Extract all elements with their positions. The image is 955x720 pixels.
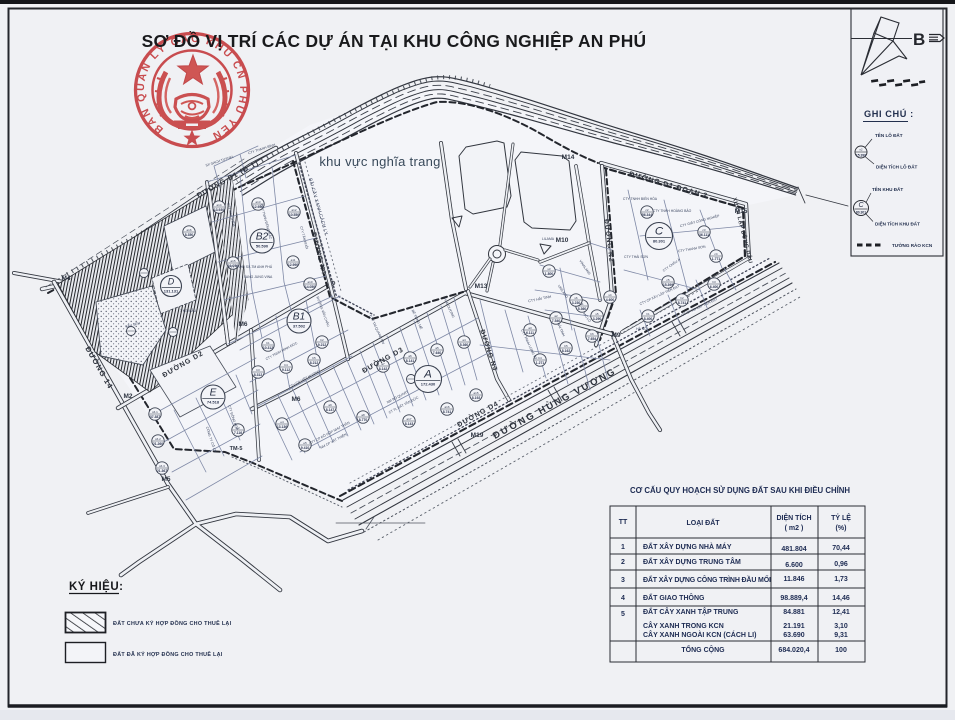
svg-text:B1: B1 [293,312,305,323]
svg-text:70,44: 70,44 [832,545,850,552]
svg-text:TT: TT [619,519,628,526]
svg-text:7.640: 7.640 [433,351,442,355]
svg-text:TÊN KHU ĐẤT: TÊN KHU ĐẤT [872,185,903,192]
svg-text:74.518: 74.518 [207,400,220,405]
svg-text:a15: a15 [473,391,478,395]
svg-text:84.881: 84.881 [783,609,805,616]
svg-text:TƯỜNG RÀO KCN: TƯỜNG RÀO KCN [892,241,933,248]
svg-text:b5: b5 [564,344,568,348]
svg-text:a3: a3 [528,326,532,330]
svg-text:37.387: 37.387 [150,415,160,419]
svg-text:1.771: 1.771 [712,257,721,261]
svg-text:8.141: 8.141 [406,359,415,363]
svg-text:h2: h2 [680,296,684,300]
svg-text:a17: a17 [406,417,411,421]
svg-text:s5: s5 [595,312,599,316]
svg-text:DIỆN TÍCH KHU ĐẤT: DIỆN TÍCH KHU ĐẤT [875,220,920,227]
svg-text:12,41: 12,41 [832,609,850,616]
svg-text:khu vực nghĩa trang: khu vực nghĩa trang [319,154,440,169]
svg-text:B: B [913,30,925,49]
svg-text:1.800: 1.800 [545,272,554,276]
svg-text:7.116: 7.116 [234,431,242,435]
svg-text:CTY TNHH BIỂN HÒA: CTY TNHH BIỂN HÒA [623,196,658,201]
svg-text:KÝ HIỆU:: KÝ HIỆU: [69,580,123,593]
svg-text:a4: a4 [462,338,466,342]
svg-text:9.410: 9.410 [301,446,310,450]
svg-text:13.136: 13.136 [277,425,287,429]
svg-text:8.741: 8.741 [443,410,452,414]
svg-text:A: A [423,369,432,381]
svg-text:6.400: 6.400 [710,285,719,289]
svg-text:36.111: 36.111 [699,233,709,237]
svg-text:e5: e5 [303,441,307,445]
svg-text:CƠ CẤU QUY HOẠCH SỬ DỤNG ĐẤT S: CƠ CẤU QUY HOẠCH SỬ DỤNG ĐẤT SAU KHI ĐIỀ… [630,485,850,495]
svg-text:LILAMA: LILAMA [542,237,555,241]
svg-text:c3: c3 [702,228,706,232]
svg-text:c4: c4 [714,252,718,256]
svg-text:DIỆN TÍCH: DIỆN TÍCH [777,513,812,522]
svg-text:M5: M5 [161,476,170,483]
svg-text:ĐẤT ĐÃ KÝ HỢP ĐỒNG CHO THUÊ LẠ: ĐẤT ĐÃ KÝ HỢP ĐỒNG CHO THUÊ LẠI [113,650,223,658]
svg-text:b4: b4 [538,356,542,360]
svg-text:SƠ ĐỒ VỊ TRÍ CÁC DỰ ÁN TẠI KHU: SƠ ĐỒ VỊ TRÍ CÁC DỰ ÁN TẠI KHU CÔNG NGHI… [142,31,647,51]
svg-text:6.600: 6.600 [785,562,803,569]
svg-text:3.290: 3.290 [593,317,602,321]
svg-text:10.312: 10.312 [263,346,273,350]
svg-text:172.430: 172.430 [421,382,436,387]
svg-text:8.312: 8.312 [254,373,263,377]
svg-text:3.230: 3.230 [572,301,581,305]
svg-text:21.367: 21.367 [157,469,167,473]
svg-text:1.271: 1.271 [536,361,545,365]
svg-text:M19: M19 [471,432,484,439]
svg-text:98.889,4: 98.889,4 [780,595,807,602]
svg-text:HÀ NỘI: HÀ NỘI [636,326,648,331]
svg-text:a5: a5 [435,346,439,350]
svg-text:a2: a2 [554,314,558,318]
svg-text:M4: M4 [61,275,70,282]
svg-text:s6: s6 [574,296,578,300]
svg-text:14.050: 14.050 [305,285,315,289]
svg-text:2: 2 [621,559,625,566]
svg-text:TỶ LỆ: TỶ LỆ [831,513,851,522]
svg-text:E: E [210,388,217,399]
svg-text:1,73: 1,73 [834,576,848,583]
svg-text:TÊN LÔ ĐẤT: TÊN LÔ ĐẤT [875,131,903,138]
svg-text:b2: b2 [320,338,324,342]
svg-text:5.360: 5.360 [460,343,469,347]
svg-text:9.212: 9.212 [318,343,327,347]
svg-text:5: 5 [621,611,625,618]
svg-text:8.350: 8.350 [185,233,194,237]
svg-text:684.020,4: 684.020,4 [778,647,809,654]
svg-text:a12: a12 [291,208,296,212]
svg-text:s6.3: s6.3 [159,464,165,468]
svg-text:M6: M6 [291,396,300,403]
svg-text:ĐẤT CHƯA KÝ HỢP ĐỒNG CHO THUÊ: ĐẤT CHƯA KÝ HỢP ĐỒNG CHO THUÊ LẠI [113,619,232,627]
svg-text:M6: M6 [238,321,247,328]
svg-text:8.770: 8.770 [359,418,368,422]
svg-text:s6.1: s6.1 [152,410,158,414]
svg-text:( m2 ): ( m2 ) [785,525,804,532]
svg-text:b4: b4 [284,363,288,367]
svg-text:s4: s4 [608,293,612,297]
svg-text:10.550: 10.550 [289,213,299,217]
svg-text:TỔNG CỘNG: TỔNG CỘNG [681,645,725,654]
svg-text:a11: a11 [291,258,296,262]
svg-text:14,46: 14,46 [832,595,850,602]
svg-text:7.654: 7.654 [588,337,597,341]
svg-text:21.260: 21.260 [153,442,163,446]
svg-text:3,10: 3,10 [834,623,848,630]
svg-text:M10: M10 [556,237,569,244]
svg-text:M15: M15 [735,208,748,215]
svg-text:a10: a10 [307,280,312,284]
svg-text:CTY THÁI SƠN: CTY THÁI SƠN [624,255,648,259]
svg-text:c5: c5 [666,278,670,282]
svg-text:M2: M2 [123,393,132,400]
svg-text:8.143: 8.143 [405,422,414,426]
svg-text:8.162: 8.162 [562,349,571,353]
svg-text:9.112: 9.112 [282,368,290,372]
svg-text:e4: e4 [280,420,284,424]
svg-text:b3: b3 [256,368,260,372]
svg-text:1: 1 [621,544,625,551]
svg-text:s6.2: s6.2 [155,437,161,441]
svg-text:a13: a13 [255,200,260,204]
svg-text:M9: M9 [611,332,620,339]
svg-text:CTY TNHH SX-TM ANH PHÚ: CTY TNHH SX-TM ANH PHÚ [228,264,273,269]
svg-text:D: D [168,277,175,287]
svg-text:DIỆN TÍCH LÔ ĐẤT: DIỆN TÍCH LÔ ĐẤT [876,163,918,170]
svg-text:63.690: 63.690 [783,632,805,639]
svg-text:SANG JUNG VINA: SANG JUNG VINA [244,275,273,279]
svg-text:b6: b6 [590,332,594,336]
svg-text:50.590: 50.590 [256,244,269,249]
svg-text:8.142: 8.142 [379,367,388,371]
svg-text:B2: B2 [256,232,269,243]
svg-text:s3: s3 [547,267,551,271]
svg-text:13.930: 13.930 [214,208,224,212]
svg-text:80.301: 80.301 [653,239,666,244]
svg-text:11.846: 11.846 [783,576,804,583]
svg-text:M13: M13 [475,283,488,290]
svg-text:7 KG MẪU: 7 KG MẪU [180,308,197,313]
svg-text:0,96: 0,96 [834,561,848,568]
svg-text:37.502: 37.502 [293,324,306,329]
svg-text:15.399: 15.399 [856,153,866,157]
svg-text:8.400: 8.400 [644,317,653,321]
svg-text:8.741: 8.741 [678,301,687,305]
svg-text:a6: a6 [408,354,412,358]
svg-text:8.147: 8.147 [326,408,335,412]
svg-text:5.360: 5.360 [578,307,587,311]
svg-text:131.131: 131.131 [164,289,179,294]
svg-text:80.301: 80.301 [856,211,866,215]
svg-text:8.212: 8.212 [310,361,319,365]
svg-text:c2: c2 [645,208,649,212]
svg-text:56.344: 56.344 [642,213,652,217]
svg-text:GHI CHÚ :: GHI CHÚ : [864,108,914,119]
svg-text:4: 4 [621,595,625,602]
svg-text:b1: b1 [266,341,270,345]
svg-text:C: C [655,226,664,238]
svg-text:TM-5: TM-5 [230,446,243,452]
svg-text:(%): (%) [836,525,847,532]
svg-text:a15: a15 [230,259,235,263]
svg-text:M14: M14 [562,154,575,161]
svg-text:CÂY XANH TRONG KCN: CÂY XANH TRONG KCN [643,621,724,630]
svg-text:a16: a16 [186,228,191,232]
svg-text:a16: a16 [444,405,449,409]
svg-text:CÂY XANH NGOÀI KCN (CÁCH LI): CÂY XANH NGOÀI KCN (CÁCH LI) [643,630,756,639]
svg-text:3: 3 [621,577,625,584]
svg-text:CTY TNHH HOÀNG BẢO: CTY TNHH HOÀNG BẢO [653,208,692,213]
svg-text:12.990: 12.990 [288,263,298,267]
svg-text:21.191: 21.191 [783,623,805,630]
svg-text:100: 100 [835,647,847,654]
svg-text:4.600: 4.600 [606,298,615,302]
svg-text:a9: a9 [328,403,332,407]
svg-text:481.804: 481.804 [781,546,806,553]
svg-text:b5: b5 [312,356,316,360]
svg-text:9,31: 9,31 [834,632,848,639]
svg-text:a8: a8 [361,413,365,417]
svg-text:s2: s2 [859,148,863,152]
svg-text:h1: h1 [646,312,650,316]
svg-text:h3: h3 [712,280,716,284]
svg-text:8.192: 8.192 [472,396,481,400]
svg-text:a14: a14 [216,203,221,207]
